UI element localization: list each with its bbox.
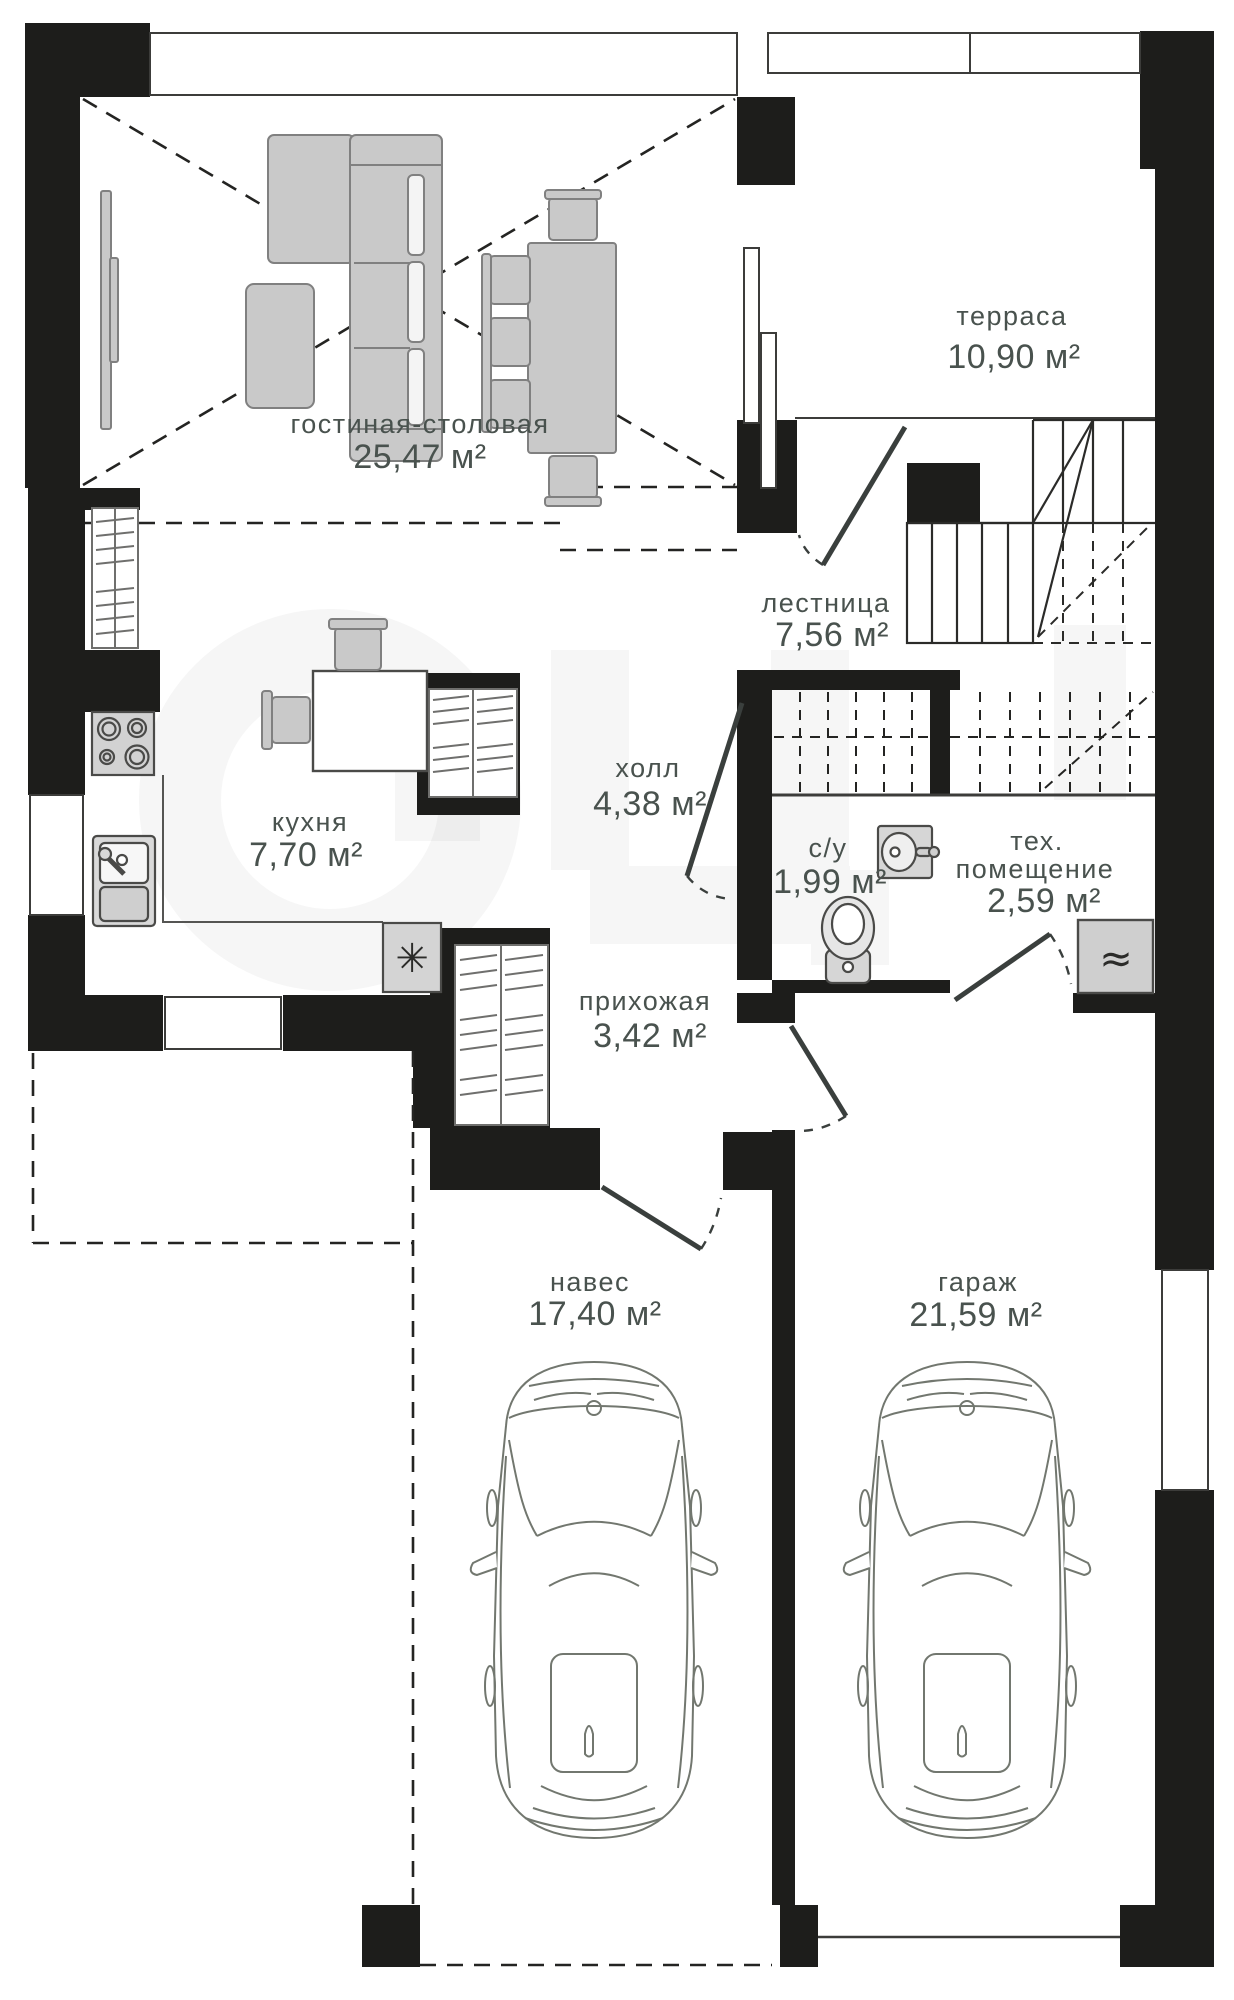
- area-stairs: 7,56 м²: [775, 616, 889, 654]
- tv-panel: [110, 258, 118, 362]
- dining-chair: [490, 256, 530, 304]
- label-tech-2: помещение: [956, 854, 1115, 884]
- area-garage: 21,59 м²: [909, 1296, 1042, 1334]
- dining-chair: [549, 456, 597, 498]
- kitchen-sink: [93, 836, 155, 926]
- label-stairs: лестница: [761, 588, 890, 618]
- label-entry: прихожая: [579, 986, 711, 1016]
- label-carport: навес: [550, 1267, 630, 1297]
- area-carport: 17,40 м²: [528, 1295, 661, 1333]
- dining-chair: [490, 318, 530, 366]
- label-hall: холл: [615, 753, 680, 783]
- wash-basin: [878, 826, 939, 878]
- area-kitchen: 7,70 м²: [249, 836, 363, 874]
- coffee-table: [246, 284, 314, 408]
- floor-plan-canvas: ✳ ≈: [0, 0, 1234, 2000]
- staircase: [907, 420, 1155, 643]
- toilet: [822, 897, 874, 983]
- area-terrace: 10,90 м²: [947, 338, 1080, 376]
- washer-icon: ✳: [395, 936, 429, 982]
- label-tech-1: тех.: [1010, 826, 1064, 856]
- floor-plan: ✳ ≈: [0, 0, 1234, 2000]
- area-tech: 2,59 м²: [987, 882, 1101, 920]
- sofa-chaise: [268, 135, 354, 263]
- label-kitchen: кухня: [272, 807, 348, 837]
- area-living: 25,47 м²: [353, 438, 486, 476]
- area-wc: 1,99 м²: [773, 863, 887, 901]
- dining-chair: [549, 198, 597, 240]
- label-terrace: терраса: [956, 301, 1067, 331]
- radiator: [92, 508, 138, 648]
- boiler-icon: ≈: [1099, 936, 1133, 982]
- washing-machine: ✳: [383, 923, 441, 992]
- label-garage: гараж: [938, 1267, 1018, 1297]
- boiler: ≈: [1078, 920, 1153, 993]
- entry-wardrobe: [430, 928, 550, 1130]
- room-labels: гостиная-столовая 25,47 м² терраса 10,90…: [249, 301, 1114, 1334]
- hall-closet: [417, 673, 520, 815]
- label-wc: с/у: [808, 833, 847, 863]
- area-entry: 3,42 м²: [593, 1017, 707, 1055]
- label-living: гостиная-столовая: [291, 409, 550, 439]
- carport-car: [471, 1362, 718, 1838]
- garage-car: [844, 1362, 1091, 1838]
- area-hall: 4,38 м²: [593, 785, 707, 823]
- stove: [92, 712, 154, 775]
